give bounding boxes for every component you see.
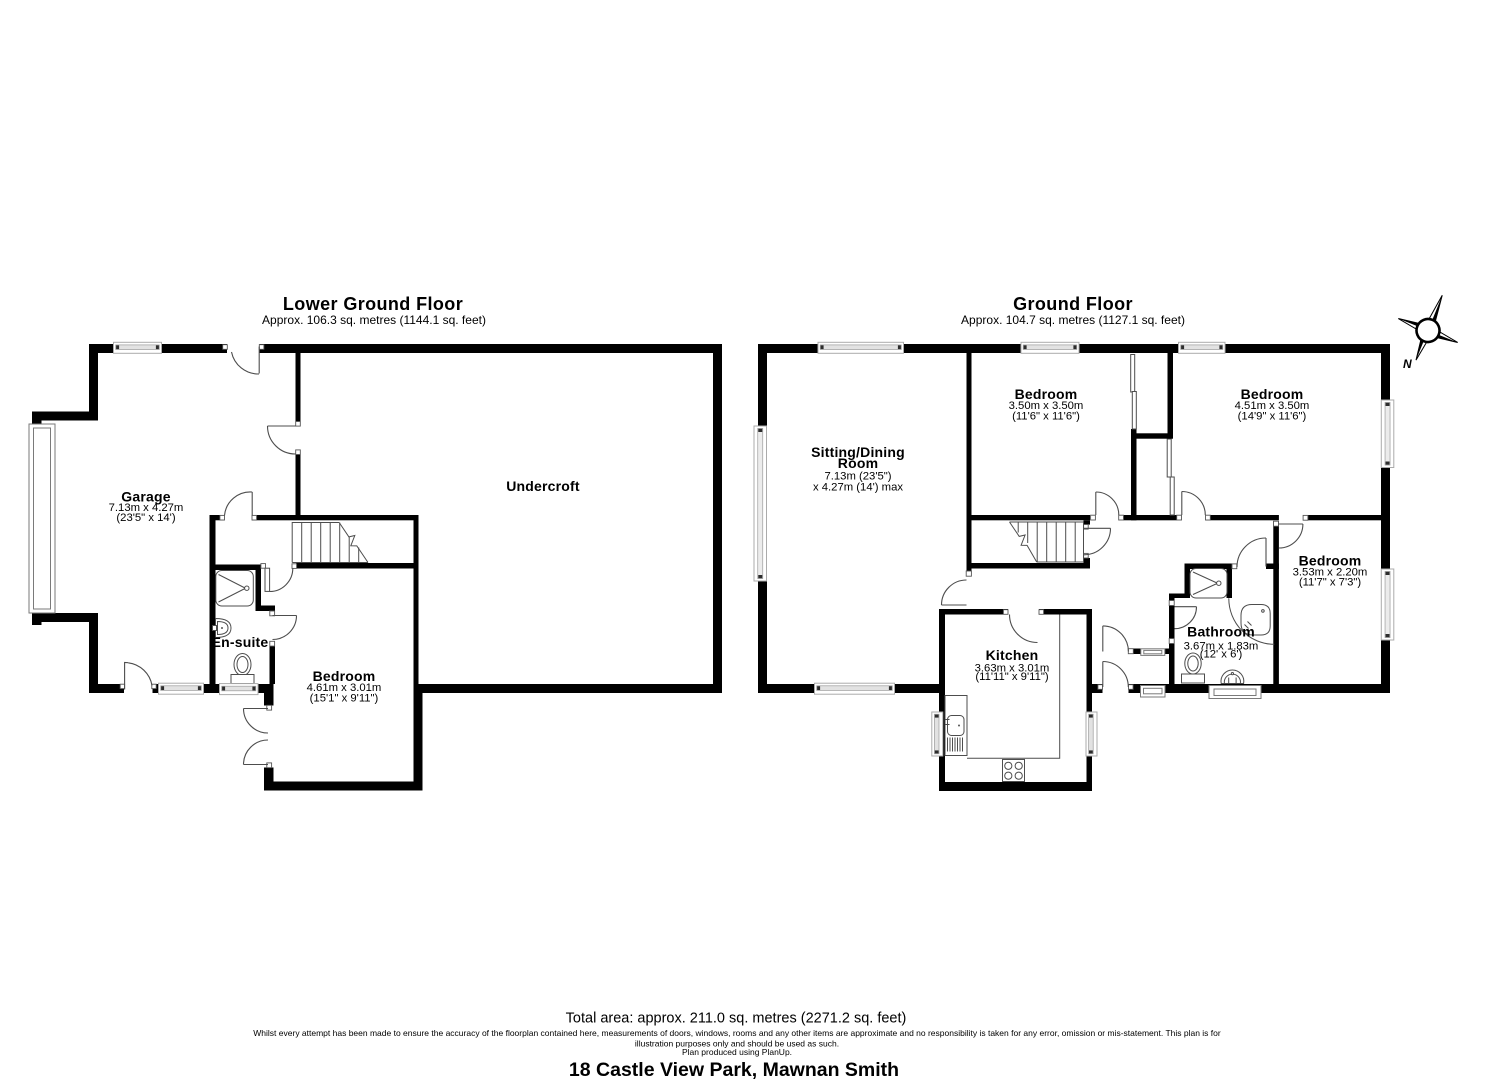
svg-text:N: N — [1403, 357, 1412, 371]
svg-text:Total area: approx. 211.0 sq.: Total area: approx. 211.0 sq. metres (22… — [566, 1011, 907, 1027]
svg-text:(12' x 6'): (12' x 6') — [1200, 649, 1243, 661]
svg-text:(11'11" x 9'11"): (11'11" x 9'11") — [975, 671, 1048, 683]
svg-text:Room: Room — [838, 455, 878, 471]
svg-text:(14'9" x 11'6"): (14'9" x 11'6") — [1238, 411, 1307, 423]
svg-text:(15'1" x 9'11"): (15'1" x 9'11") — [310, 693, 379, 705]
svg-text:(11'7" x 7'3"): (11'7" x 7'3") — [1299, 577, 1362, 589]
svg-text:x 4.27m (14') max: x 4.27m (14') max — [813, 482, 903, 494]
svg-text:18 Castle View Park, Mawnan Sm: 18 Castle View Park, Mawnan Smith — [569, 1059, 899, 1080]
svg-text:Undercroft: Undercroft — [506, 478, 580, 494]
svg-text:Whilst every attempt has been: Whilst every attempt has been made to en… — [253, 1028, 1221, 1038]
svg-text:Bathroom: Bathroom — [1187, 624, 1255, 640]
svg-text:Lower Ground Floor: Lower Ground Floor — [283, 294, 463, 314]
svg-text:Approx. 106.3 sq. metres (1144: Approx. 106.3 sq. metres (1144.1 sq. fee… — [262, 313, 486, 327]
svg-text:(23'5" x 14'): (23'5" x 14') — [116, 512, 175, 524]
svg-text:Plan produced using PlanUp.: Plan produced using PlanUp. — [682, 1047, 792, 1057]
svg-text:Kitchen: Kitchen — [986, 647, 1039, 663]
svg-text:En-suite: En-suite — [212, 634, 269, 650]
svg-text:Ground Floor: Ground Floor — [1013, 294, 1133, 314]
svg-text:Approx. 104.7 sq. metres (1127: Approx. 104.7 sq. metres (1127.1 sq. fee… — [961, 313, 1185, 327]
svg-text:(11'6" x 11'6"): (11'6" x 11'6") — [1012, 411, 1080, 423]
